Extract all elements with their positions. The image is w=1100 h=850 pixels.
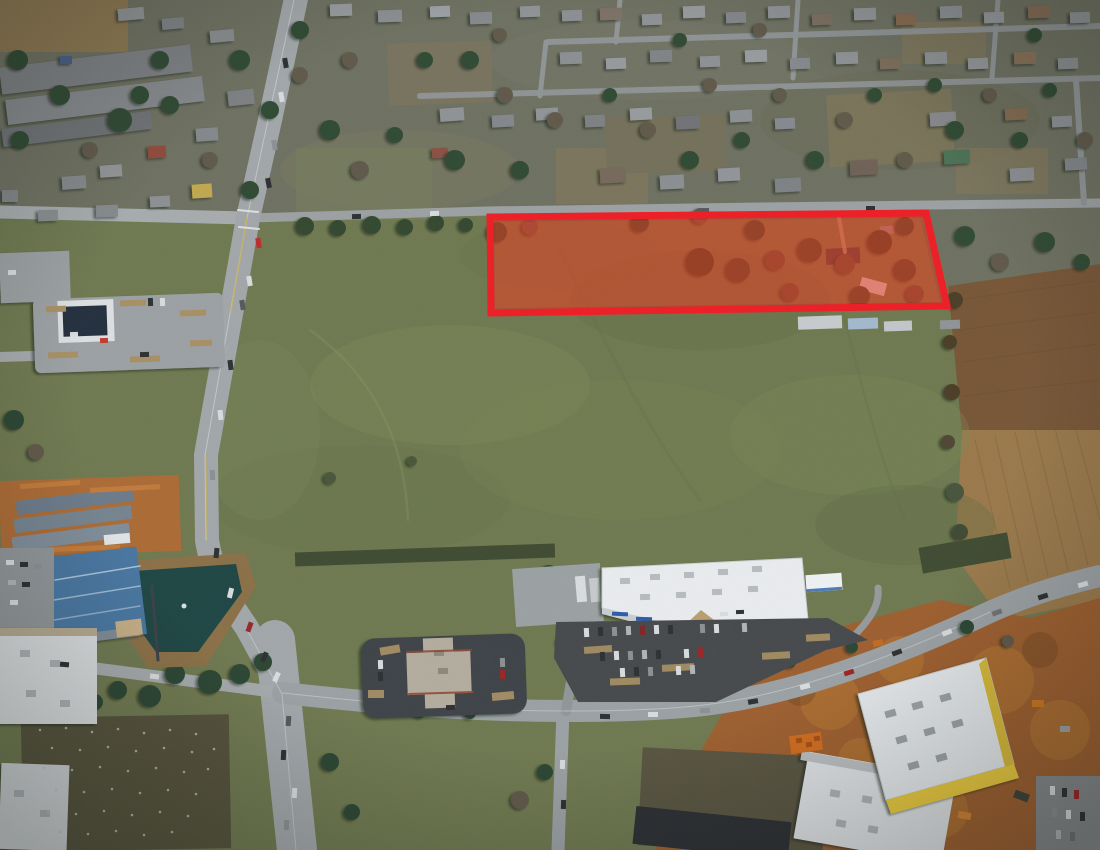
aerial-scene-canvas <box>0 0 1100 850</box>
film-grain <box>0 0 1100 850</box>
aerial-property-photo <box>0 0 1100 850</box>
